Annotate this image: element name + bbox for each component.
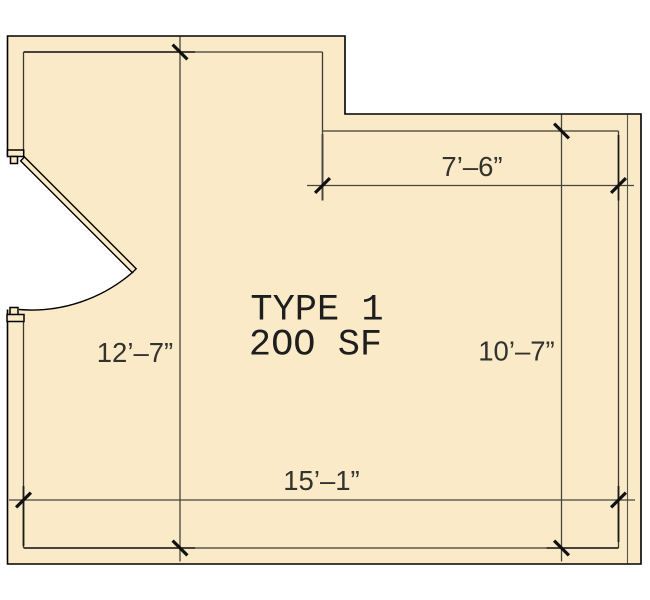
svg-text:15’–1”: 15’–1” [283, 465, 359, 496]
svg-text:10’–7”: 10’–7” [478, 336, 554, 367]
svg-text:12’–7”: 12’–7” [97, 337, 173, 368]
svg-text:7’–6”: 7’–6” [441, 151, 502, 182]
svg-text:2OO SF: 2OO SF [249, 325, 382, 367]
